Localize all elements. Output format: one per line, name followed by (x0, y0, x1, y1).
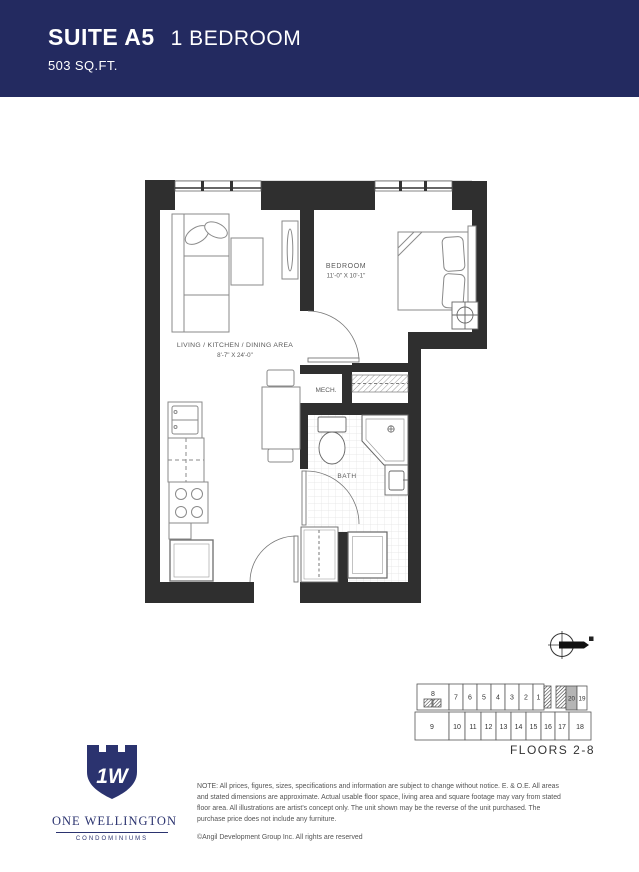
svg-text:17: 17 (558, 724, 566, 731)
sofa (172, 214, 230, 332)
bath-label: BATH (337, 473, 356, 480)
svg-text:19: 19 (578, 696, 586, 703)
svg-text:20: 20 (568, 696, 576, 703)
svg-text:4: 4 (496, 695, 500, 702)
window-living (175, 181, 261, 191)
living-dims: 8'-7" X 24'-0" (217, 352, 253, 359)
logo-monogram: 1W (96, 765, 130, 788)
north-arrow-icon (546, 624, 598, 666)
title-bar: SUITE A5 1 BEDROOM 503 SQ.FT. (0, 0, 639, 97)
svg-text:14: 14 (515, 724, 523, 731)
svg-text:7: 7 (454, 695, 458, 702)
svg-text:1: 1 (537, 695, 541, 702)
suite-type: 1 BEDROOM (171, 27, 302, 51)
disclaimer-copyright: ©Angil Development Group Inc. All rights… (197, 832, 563, 843)
keyplan: 8 7 6 5 4 3 2 1 20 19 9 10 11 12 13 14 1… (412, 676, 596, 746)
dining-table (262, 370, 300, 462)
entry-closet (301, 527, 338, 582)
suite-title: SUITE A5 (48, 24, 155, 51)
logo-name: ONE WELLINGTON (52, 814, 172, 829)
window-bedroom (375, 181, 452, 191)
shield-crest-icon: 1W (86, 744, 138, 802)
svg-text:9: 9 (430, 724, 434, 731)
living-label: LIVING / KITCHEN / DINING AREA (177, 342, 293, 349)
svg-text:18: 18 (576, 724, 584, 731)
bedroom-label: BEDROOM (326, 263, 366, 270)
svg-text:8: 8 (431, 691, 435, 698)
svg-text:13: 13 (500, 724, 508, 731)
disclaimer: NOTE: All prices, figures, sizes, specif… (197, 781, 563, 843)
kitchen-counter (168, 438, 204, 482)
floors-label: FLOORS 2-8 (500, 743, 595, 757)
kitchen-cabinet (169, 523, 191, 539)
logo-subtitle: CONDOMINIUMS (52, 836, 172, 842)
bed (398, 226, 476, 314)
fridge (170, 540, 213, 581)
svg-text:15: 15 (530, 724, 538, 731)
brand-logo: 1W ONE WELLINGTON CONDOMINIUMS (52, 744, 172, 842)
keyplan-units (415, 684, 591, 740)
stove (169, 482, 208, 523)
light-fixture (452, 302, 478, 329)
bedroom-dims: 11'-0" X 10'-1" (327, 273, 366, 280)
toilet (318, 417, 346, 464)
svg-text:16: 16 (544, 724, 552, 731)
kitchen-sink (168, 402, 202, 438)
vanity-sink (385, 465, 408, 495)
svg-text:5: 5 (482, 695, 486, 702)
tv-console (282, 221, 298, 279)
bedroom-door (308, 311, 359, 362)
entry-door (250, 536, 298, 582)
laundry-closet (348, 532, 387, 578)
coffee-table (231, 238, 263, 285)
mech-label: MECH. (316, 387, 337, 394)
svg-text:2: 2 (524, 695, 528, 702)
svg-text:3: 3 (510, 695, 514, 702)
floorplan-drawing: BEDROOM 11'-0" X 10'-1" LIVING / KITCHEN… (140, 168, 490, 618)
svg-text:10: 10 (453, 724, 461, 731)
svg-text:11: 11 (469, 724, 476, 731)
suite-area: 503 SQ.FT. (48, 58, 639, 73)
logo-divider (56, 832, 168, 833)
disclaimer-note: NOTE: All prices, figures, sizes, specif… (197, 781, 563, 825)
bedroom-closet (352, 375, 408, 392)
svg-text:6: 6 (468, 695, 472, 702)
svg-text:12: 12 (485, 724, 493, 731)
